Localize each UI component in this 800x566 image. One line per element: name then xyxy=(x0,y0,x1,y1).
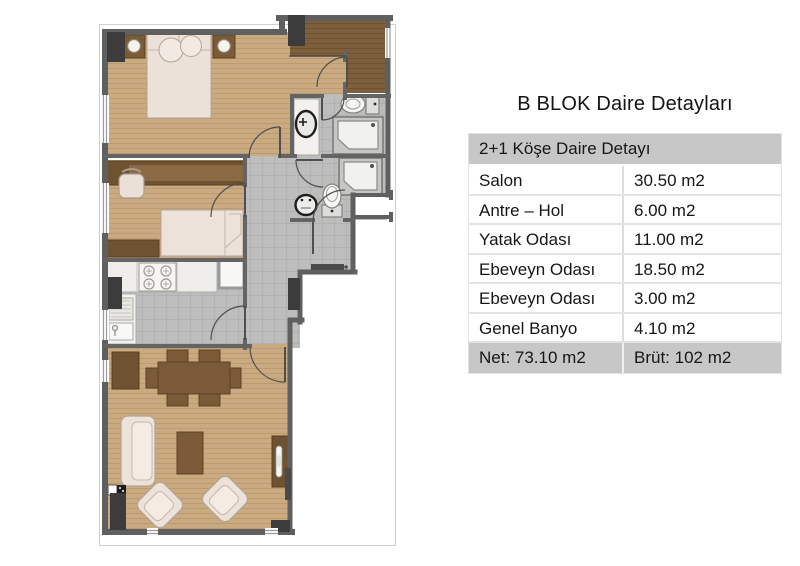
lamp xyxy=(218,40,231,53)
window xyxy=(265,528,278,536)
pillow xyxy=(159,38,183,62)
dining-chair xyxy=(199,350,220,363)
window xyxy=(101,95,109,143)
fridge xyxy=(219,259,244,288)
page-title: B BLOK Daire Detayları xyxy=(468,93,782,116)
column xyxy=(288,15,305,46)
room-area: 3.00 m2 xyxy=(622,284,781,312)
floor-plan xyxy=(95,8,400,553)
table-footer: Net: 73.10 m2 Brüt: 102 m2 xyxy=(469,343,781,373)
washbasin xyxy=(296,195,317,215)
coffee-table xyxy=(177,432,203,474)
table-header: 2+1 Köşe Daire Detayı xyxy=(469,134,781,166)
column xyxy=(110,493,126,530)
apartment-details-table: 2+1 Köşe Daire Detayı Salon 30.50 m2 Ant… xyxy=(468,133,782,374)
room-label: Antre – Hol xyxy=(469,196,622,224)
room-label: Ebeveyn Odası xyxy=(469,284,622,312)
window xyxy=(385,28,392,58)
room-area: 4.10 m2 xyxy=(622,314,781,342)
page: B BLOK Daire Detayları 2+1 Köşe Daire De… xyxy=(0,0,800,566)
room-label: Salon xyxy=(469,166,622,194)
shower xyxy=(339,158,382,195)
table-row: Genel Banyo 4.10 m2 xyxy=(469,314,781,344)
window xyxy=(147,528,158,536)
room-label: Yatak Odası xyxy=(469,225,622,253)
table-row: Salon 30.50 m2 xyxy=(469,166,781,196)
washbasin xyxy=(296,111,316,137)
column xyxy=(285,468,291,500)
wardrobe xyxy=(106,240,159,257)
dining-chair xyxy=(146,368,159,388)
desk-top xyxy=(129,165,244,181)
room-area: 6.00 m2 xyxy=(622,196,781,224)
toilet xyxy=(322,184,342,217)
desk-chair xyxy=(119,174,144,198)
table-row: Antre – Hol 6.00 m2 xyxy=(469,196,781,226)
net-area: Net: 73.10 m2 xyxy=(469,343,622,373)
dining-table xyxy=(158,362,230,394)
column xyxy=(107,32,125,62)
sideboard xyxy=(112,352,139,389)
dining-chair xyxy=(167,393,188,406)
room-area: 11.00 m2 xyxy=(622,225,781,253)
dining-chair xyxy=(167,350,188,363)
table-row: Ebeveyn Odası 3.00 m2 xyxy=(469,284,781,314)
stove xyxy=(139,263,176,291)
window xyxy=(101,310,109,340)
lamp xyxy=(128,40,141,53)
room-area: 30.50 m2 xyxy=(622,166,781,194)
column xyxy=(108,277,122,309)
single-bed xyxy=(161,210,243,256)
window xyxy=(101,360,109,382)
dining-chair xyxy=(199,393,220,406)
table-row: Ebeveyn Odası 18.50 m2 xyxy=(469,255,781,285)
sofa xyxy=(121,416,155,486)
entrance-door xyxy=(311,264,348,270)
room-label: Ebeveyn Odası xyxy=(469,255,622,283)
column xyxy=(288,278,300,310)
gross-area: Brüt: 102 m2 xyxy=(622,343,781,373)
room-area: 18.50 m2 xyxy=(622,255,781,283)
room-label: Genel Banyo xyxy=(469,314,622,342)
shower xyxy=(333,117,383,154)
table-row: Yatak Odası 11.00 m2 xyxy=(469,225,781,255)
pillow xyxy=(181,36,202,57)
window xyxy=(101,183,109,233)
